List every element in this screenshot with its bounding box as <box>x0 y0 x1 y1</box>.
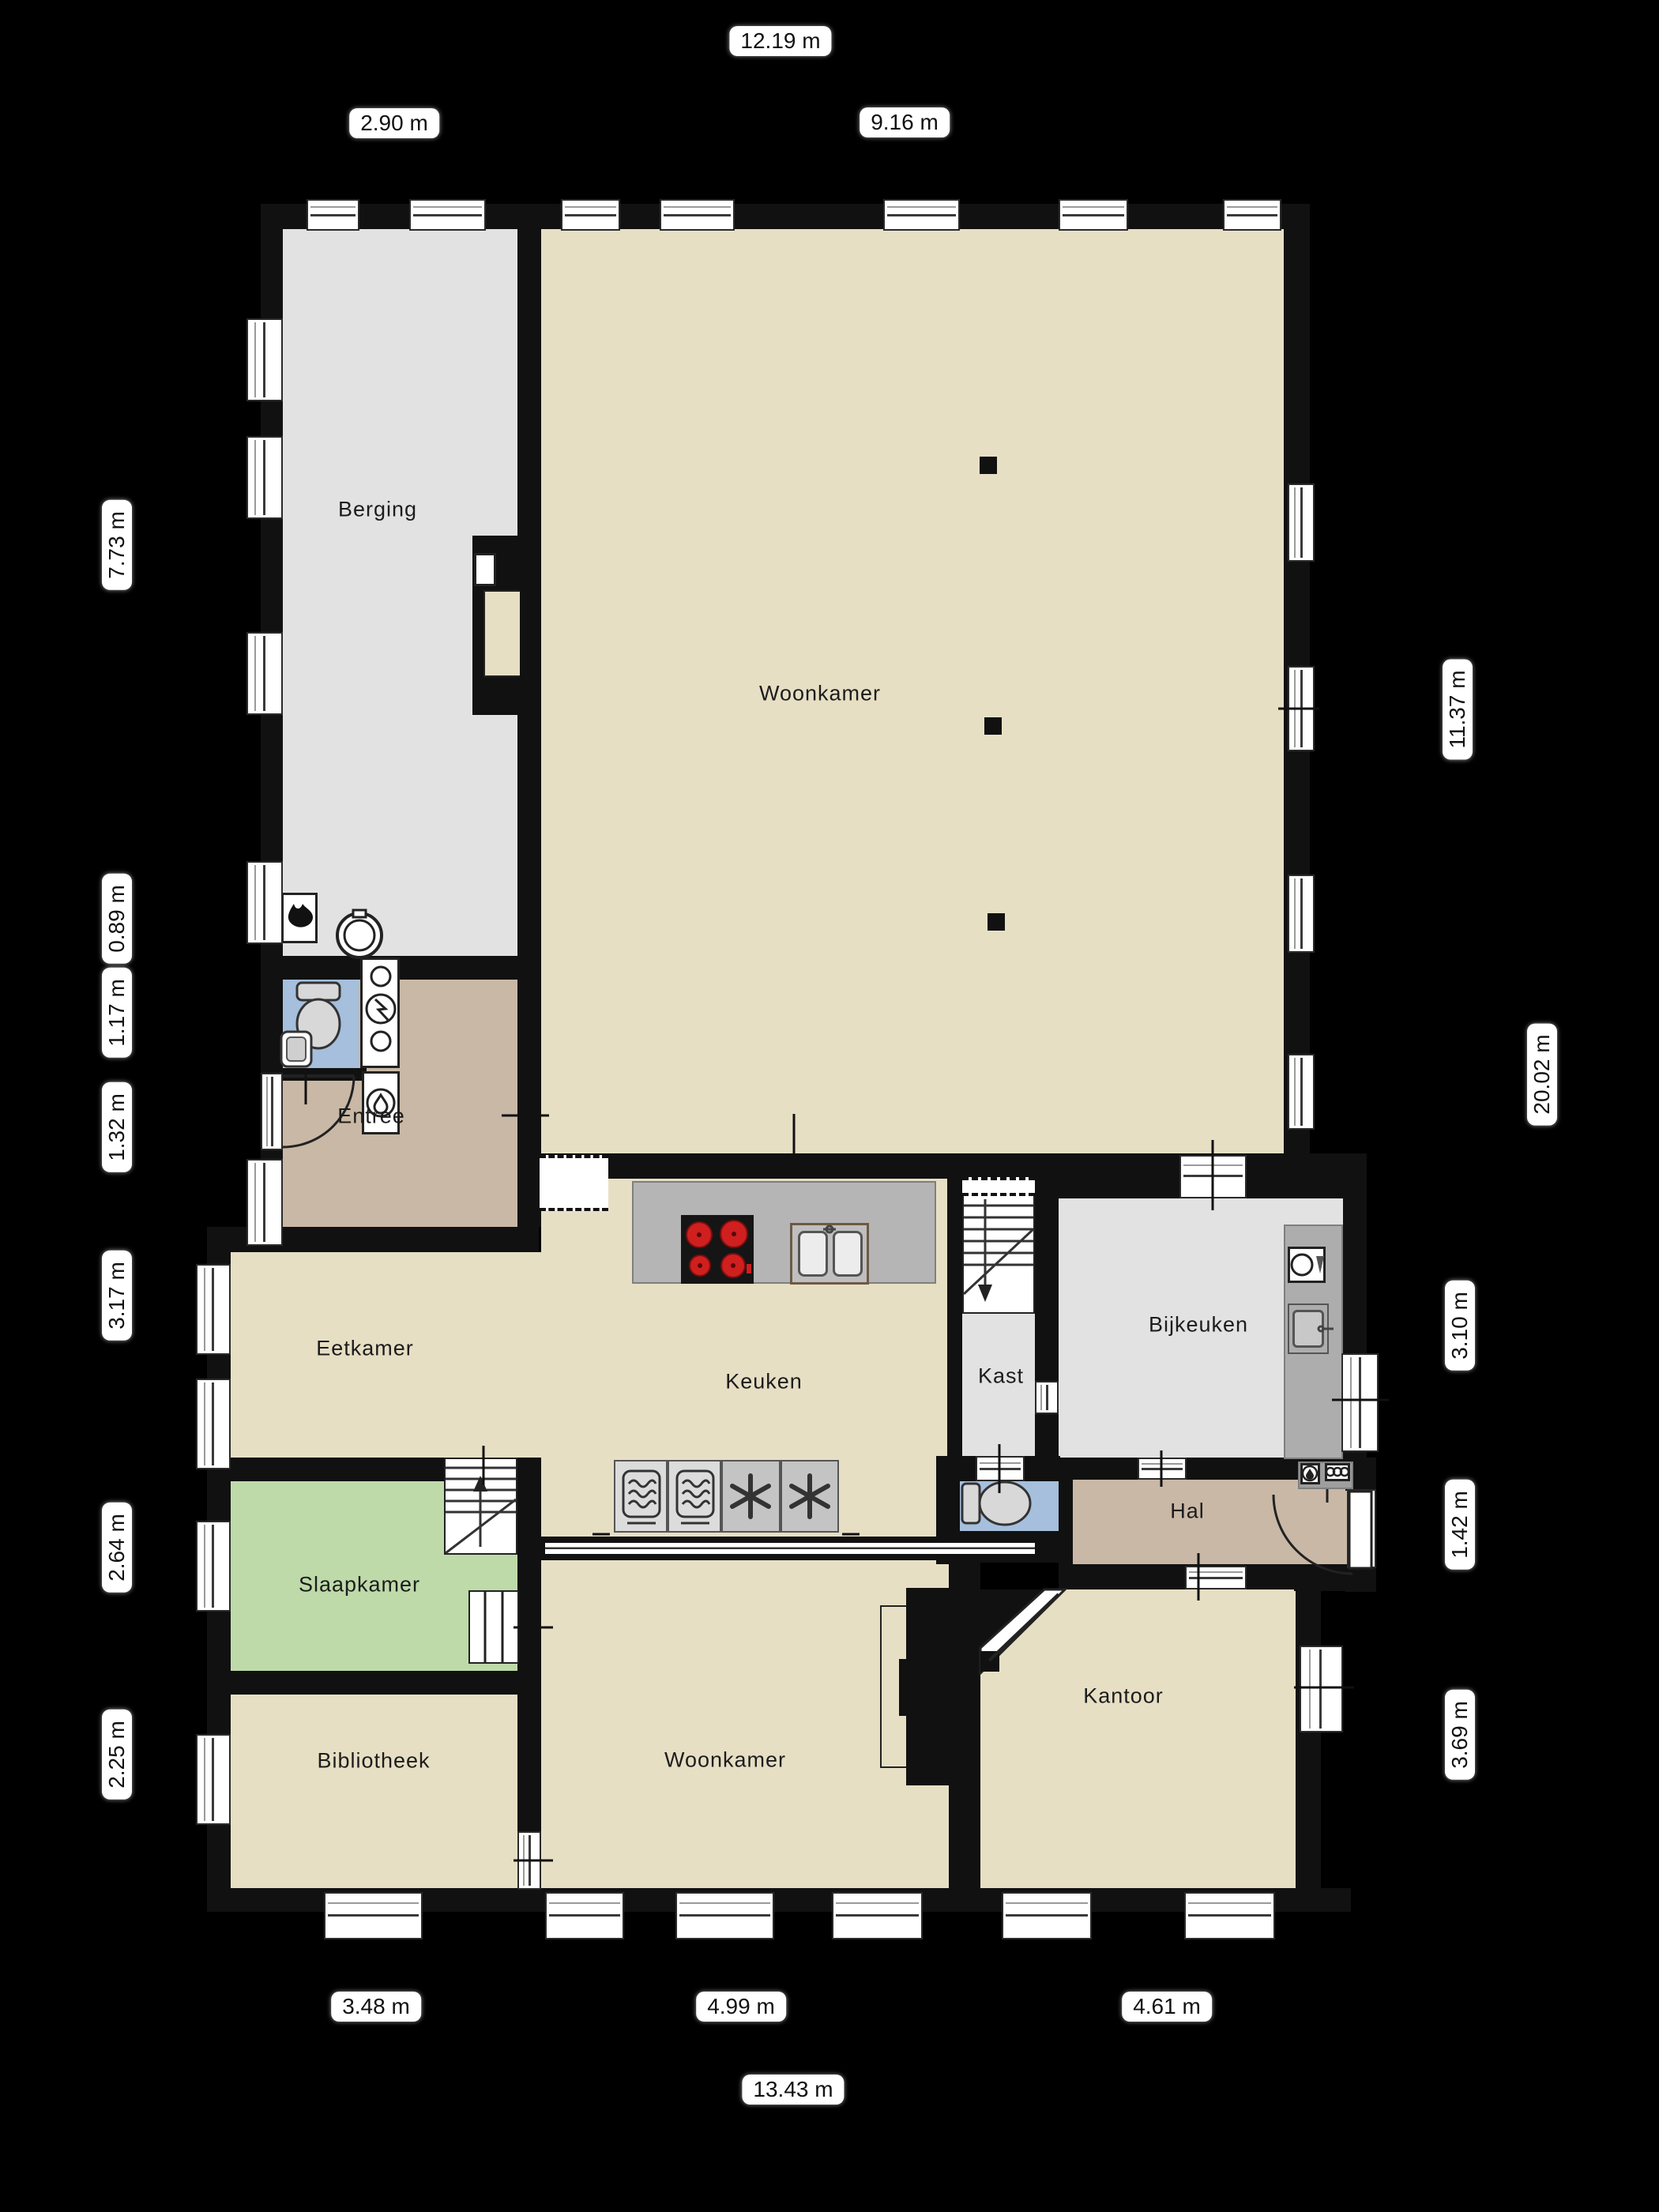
oven-icon <box>614 1460 668 1533</box>
window-top-4 <box>660 199 735 231</box>
window-left-4 <box>246 861 283 944</box>
wardrobe-icon <box>468 1590 519 1664</box>
dimension-right-total: 20.02 m <box>1527 1023 1557 1125</box>
window-right-3 <box>1288 875 1315 953</box>
room-bibliotheek-floor <box>231 1695 517 1890</box>
column-icon-1 <box>980 457 997 474</box>
utility-sink-basin <box>1292 1310 1324 1348</box>
wall-woonkamer2-kantoor <box>949 1560 980 1896</box>
dimension-left-6: 2.64 m <box>102 1503 132 1593</box>
window-bibliotheek <box>196 1734 231 1825</box>
freezer-icon-2 <box>781 1460 839 1533</box>
dimension-top-berging: 2.90 m <box>349 108 439 138</box>
freezer-icon <box>721 1460 781 1533</box>
window-right-4 <box>1288 1054 1315 1130</box>
wall-kantoor-right <box>1296 1589 1321 1894</box>
room-label-kast: Kast <box>978 1364 1024 1389</box>
room-label-bibliotheek: Bibliotheek <box>317 1749 430 1774</box>
room-label-hal: Hal <box>1170 1499 1205 1524</box>
oven-icon-2 <box>668 1460 721 1533</box>
dimension-left-7: 2.25 m <box>102 1710 132 1800</box>
window-top-6 <box>1059 199 1128 231</box>
stairs-dashed-opening <box>962 1177 1035 1196</box>
floorplan-canvas: Berging Woonkamer Entree Eetkamer Keuken… <box>0 0 1659 2212</box>
wall-toilet2-right <box>1059 1480 1073 1567</box>
chimney-flue <box>474 553 496 586</box>
room-label-slaapkamer: Slaapkamer <box>299 1573 420 1597</box>
window-left-2 <box>246 436 283 519</box>
sink-basin-left <box>798 1231 828 1277</box>
cooktop-icon <box>681 1215 754 1284</box>
window-eetkamer-1 <box>196 1264 231 1355</box>
room-toilet-floor <box>283 980 359 1068</box>
wall-toilet-bottom <box>278 1068 367 1081</box>
dimension-left-5: 3.17 m <box>102 1251 132 1341</box>
window-bottom-1 <box>324 1892 423 1939</box>
bibliotheek-door <box>517 1831 541 1890</box>
room-kantoor-floor <box>980 1589 1296 1888</box>
window-eetkamer-2 <box>196 1379 231 1469</box>
dimension-top-woonkamer: 9.16 m <box>860 107 950 137</box>
keuken-glass-partition <box>545 1540 1035 1556</box>
window-bottom-2 <box>545 1892 624 1939</box>
kast-bijkeuken-door <box>1035 1381 1059 1414</box>
room-label-eetkamer: Eetkamer <box>316 1337 414 1361</box>
dimension-left-1: 7.73 m <box>102 500 132 590</box>
fireplace-jog <box>899 1659 913 1716</box>
dimension-right-3: 1.42 m <box>1445 1480 1475 1570</box>
dimension-right-4: 3.69 m <box>1445 1690 1475 1780</box>
water-heater-icon <box>1300 1463 1320 1484</box>
window-slaapkamer <box>196 1521 231 1612</box>
room-label-kantoor: Kantoor <box>1083 1684 1164 1709</box>
window-left-1 <box>246 318 283 401</box>
wall-kast-right <box>1035 1179 1059 1480</box>
window-bottom-6 <box>1184 1892 1275 1939</box>
dimension-bottom-2: 4.99 m <box>696 1992 786 2022</box>
window-top-5 <box>883 199 960 231</box>
dimension-left-2: 0.89 m <box>102 874 132 964</box>
dimension-right-1: 11.37 m <box>1443 659 1473 759</box>
wall-keuken-kast <box>947 1179 962 1459</box>
column-icon-2 <box>984 717 1002 735</box>
dimension-top-total: 12.19 m <box>729 26 831 56</box>
dimension-bottom-3: 4.61 m <box>1122 1992 1212 2022</box>
dimension-bottom-total: 13.43 m <box>742 2075 844 2105</box>
wall-eetkamer-slaapkamer <box>231 1458 446 1481</box>
room-label-keuken: Keuken <box>725 1370 803 1394</box>
room-label-bijkeuken: Bijkeuken <box>1149 1313 1248 1337</box>
window-bijkeuken-top <box>1179 1155 1247 1198</box>
room-woonkamer-floor <box>541 229 1284 1155</box>
room-label-woonkamer2: Woonkamer <box>664 1748 786 1773</box>
window-bottom-4 <box>832 1892 923 1939</box>
dimension-bottom-1: 3.48 m <box>331 1992 421 2022</box>
room-label-woonkamer: Woonkamer <box>759 682 881 706</box>
wall-berging-right <box>517 229 541 1227</box>
window-top-1 <box>307 199 359 231</box>
sink-basin-right <box>833 1231 863 1277</box>
kast-toilet-door <box>976 1456 1025 1481</box>
room-hal-floor <box>1059 1480 1352 1567</box>
window-kantoor-right <box>1300 1646 1343 1732</box>
window-left-3 <box>246 632 283 715</box>
room-label-berging: Berging <box>338 498 417 522</box>
window-bijkeuken-right <box>1341 1353 1379 1452</box>
window-top-2 <box>409 199 486 231</box>
window-right-1 <box>1288 483 1315 562</box>
kitchen-island-counter <box>632 1181 936 1284</box>
room-toilet2-floor <box>960 1480 1059 1533</box>
room-label-entree: Entree <box>337 1104 405 1129</box>
washing-machine-icon <box>1288 1247 1326 1283</box>
dimension-right-2: 3.10 m <box>1445 1281 1475 1371</box>
electric-meter-box <box>360 957 400 1068</box>
dimension-left-4: 1.32 m <box>102 1082 132 1172</box>
window-right-2 <box>1288 666 1315 751</box>
wall-slaapkamer-bibliotheek <box>231 1671 519 1695</box>
wall-hal-bottom-right <box>1294 1564 1351 1591</box>
hal-entrance-door <box>1347 1489 1376 1568</box>
stairs-up <box>444 1458 517 1555</box>
window-hal-bottom <box>1185 1566 1247 1589</box>
front-door-opening <box>261 1073 283 1150</box>
dimension-left-3: 1.17 m <box>102 968 132 1058</box>
window-left-5 <box>246 1159 283 1246</box>
heating-unit-icon <box>1325 1463 1350 1481</box>
window-bottom-3 <box>675 1892 774 1939</box>
column-icon-3 <box>987 913 1005 931</box>
bijkeuken-hal-door <box>1138 1458 1187 1480</box>
window-top-7 <box>1223 199 1281 231</box>
stairs-down <box>962 1194 1035 1314</box>
chimney-niche <box>483 590 520 677</box>
boiler-box <box>281 893 318 943</box>
dashed-passage <box>540 1155 608 1211</box>
window-top-3 <box>561 199 620 231</box>
window-bottom-5 <box>1002 1892 1092 1939</box>
